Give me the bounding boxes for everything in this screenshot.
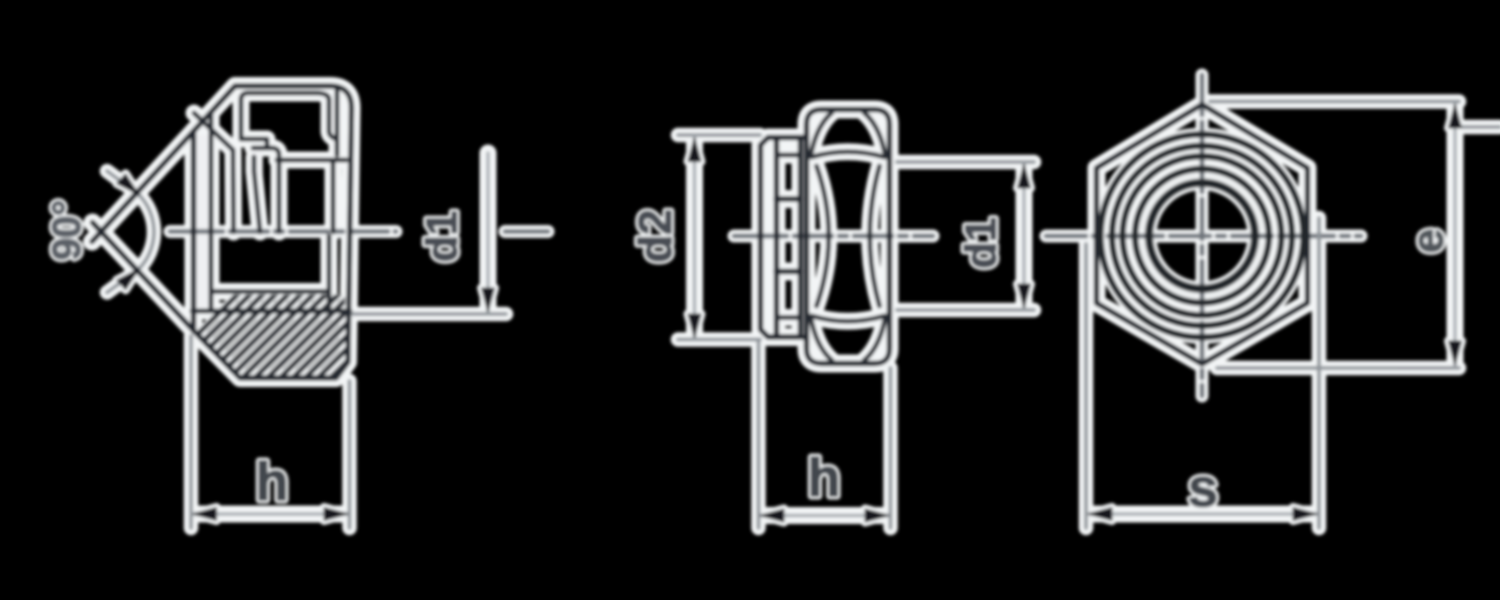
svg-text:s: s bbox=[1188, 458, 1218, 518]
svg-text:d2: d2 bbox=[629, 209, 681, 263]
svg-text:d1: d1 bbox=[956, 217, 1005, 268]
svg-text:e: e bbox=[1403, 229, 1452, 253]
svg-text:h: h bbox=[808, 448, 841, 508]
svg-text:90°: 90° bbox=[45, 200, 89, 261]
svg-text:d1: d1 bbox=[417, 211, 466, 262]
svg-text:h: h bbox=[256, 452, 289, 512]
